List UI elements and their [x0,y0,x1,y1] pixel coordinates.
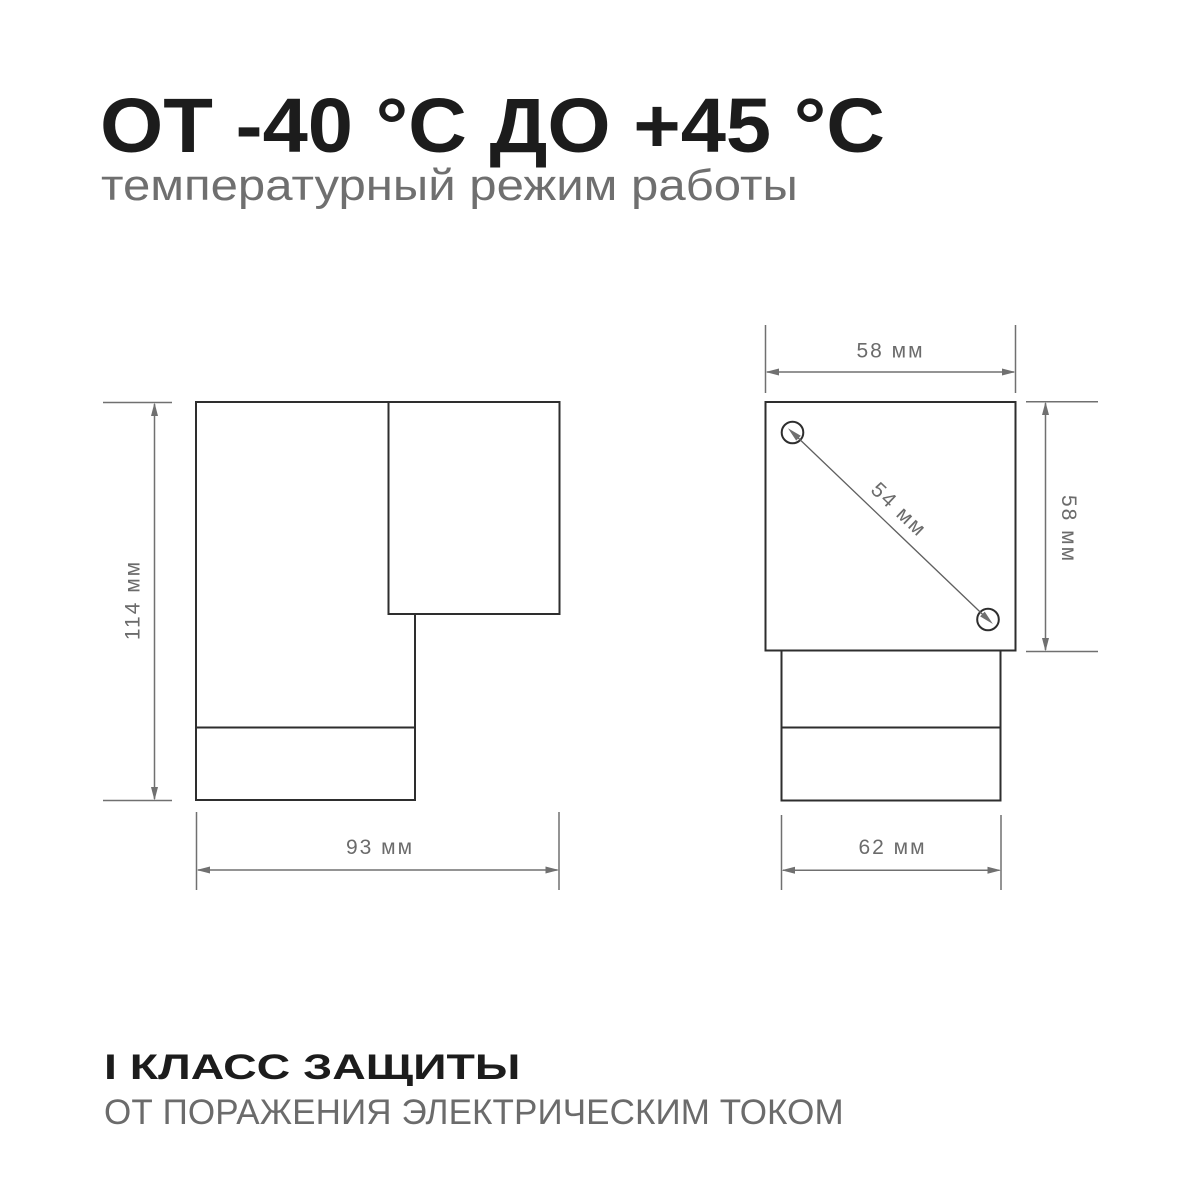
svg-text:58 мм: 58 мм [1057,495,1080,563]
svg-text:114 мм: 114 мм [122,560,145,640]
svg-text:62 мм: 62 мм [858,836,926,859]
svg-text:54 мм: 54 мм [866,478,931,542]
svg-text:58 мм: 58 мм [856,340,924,363]
svg-text:93 мм: 93 мм [346,836,414,859]
